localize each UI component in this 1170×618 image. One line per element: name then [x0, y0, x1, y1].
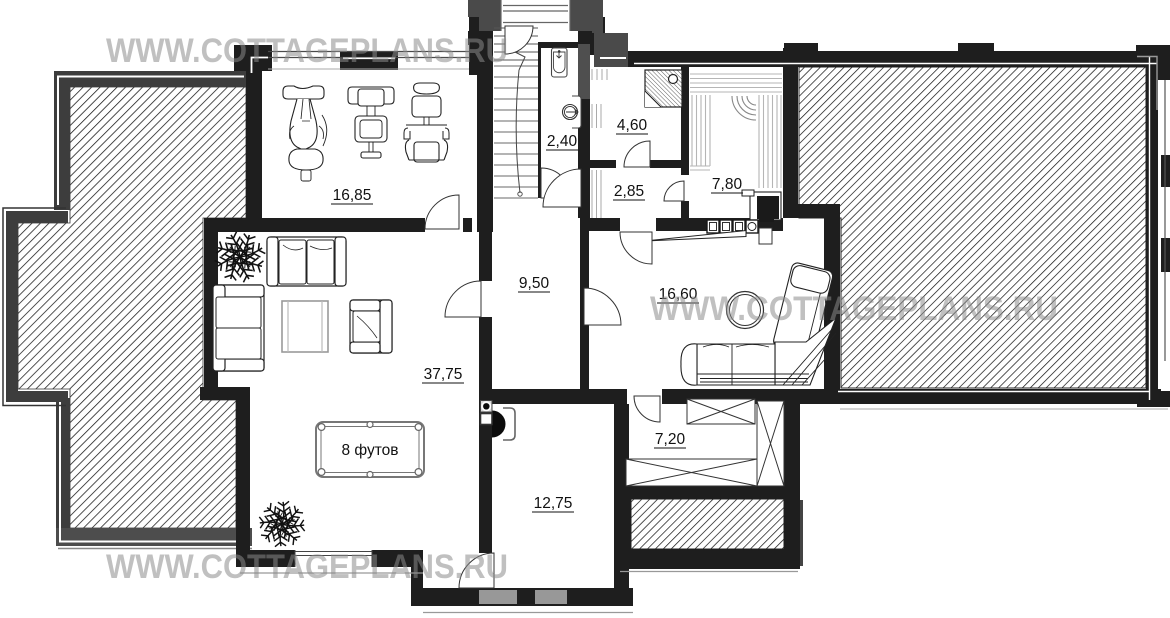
svg-text:2,85: 2,85 — [614, 183, 644, 200]
svg-text:7,80: 7,80 — [712, 176, 743, 193]
svg-text:2,40: 2,40 — [547, 133, 578, 150]
svg-text:9,50: 9,50 — [519, 275, 550, 292]
svg-text:4,60: 4,60 — [617, 117, 648, 134]
svg-text:8 футов: 8 футов — [341, 442, 398, 459]
svg-text:WWW.COTTAGEPLANS.RU: WWW.COTTAGEPLANS.RU — [650, 290, 1058, 328]
svg-text:37,75: 37,75 — [424, 366, 463, 383]
svg-text:WWW.COTTAGEPLANS.RU: WWW.COTTAGEPLANS.RU — [106, 548, 508, 586]
svg-text:12,75: 12,75 — [534, 495, 573, 512]
svg-text:WWW.COTTAGEPLANS.RU: WWW.COTTAGEPLANS.RU — [106, 32, 508, 70]
svg-text:16,85: 16,85 — [333, 187, 372, 204]
svg-text:7,20: 7,20 — [655, 431, 686, 448]
